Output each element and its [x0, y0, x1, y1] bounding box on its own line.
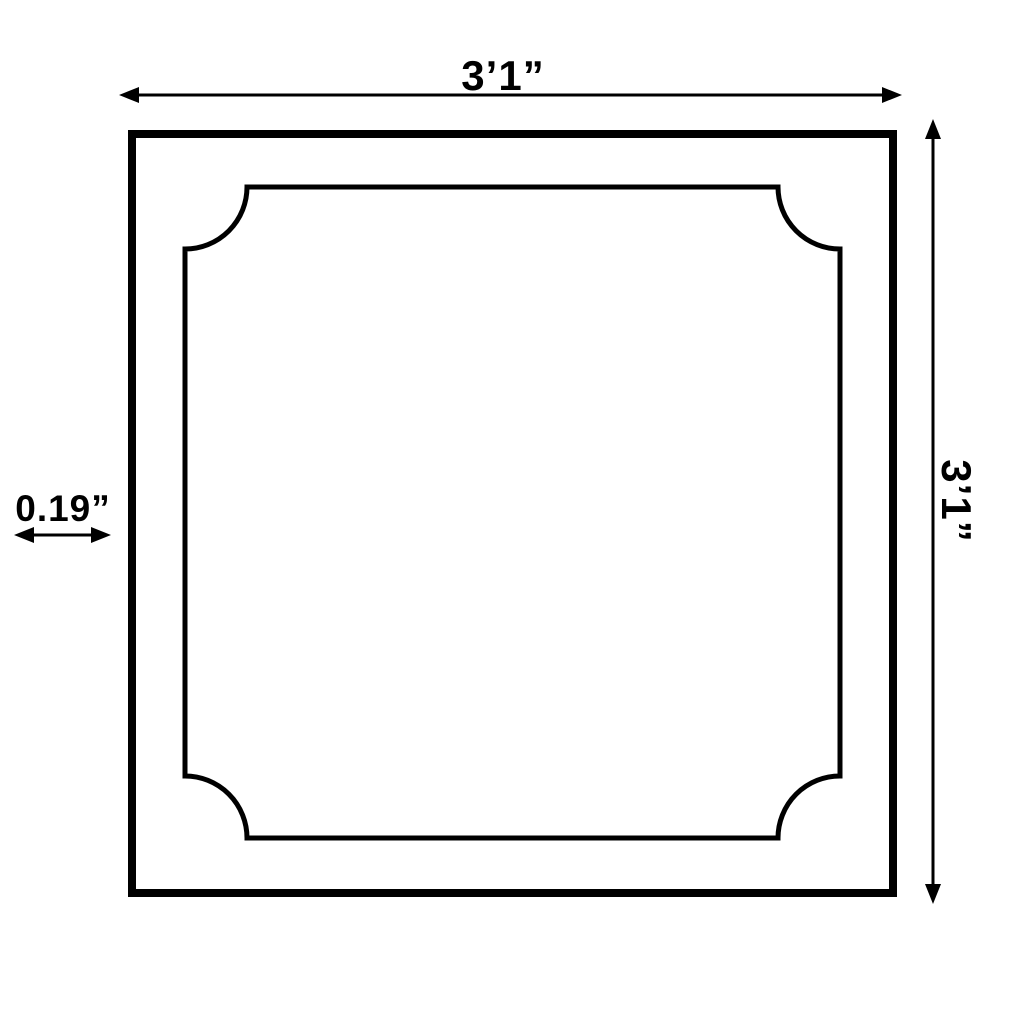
width-dimension-label: 3’1”: [461, 52, 544, 100]
diagram-canvas: 3’1” 3’1” 0.19”: [0, 0, 1024, 1024]
outer-square-outline: [132, 134, 893, 893]
width-arrowhead-left-icon: [119, 87, 139, 103]
height-arrowhead-bottom-icon: [925, 884, 941, 904]
offset-dimension-label: 0.19”: [15, 488, 111, 530]
panel-drawing: [0, 0, 1024, 1024]
inner-panel-outline: [185, 187, 840, 838]
height-arrowhead-top-icon: [925, 119, 941, 139]
width-arrowhead-right-icon: [882, 87, 902, 103]
height-dimension-label: 3’1”: [932, 459, 980, 542]
